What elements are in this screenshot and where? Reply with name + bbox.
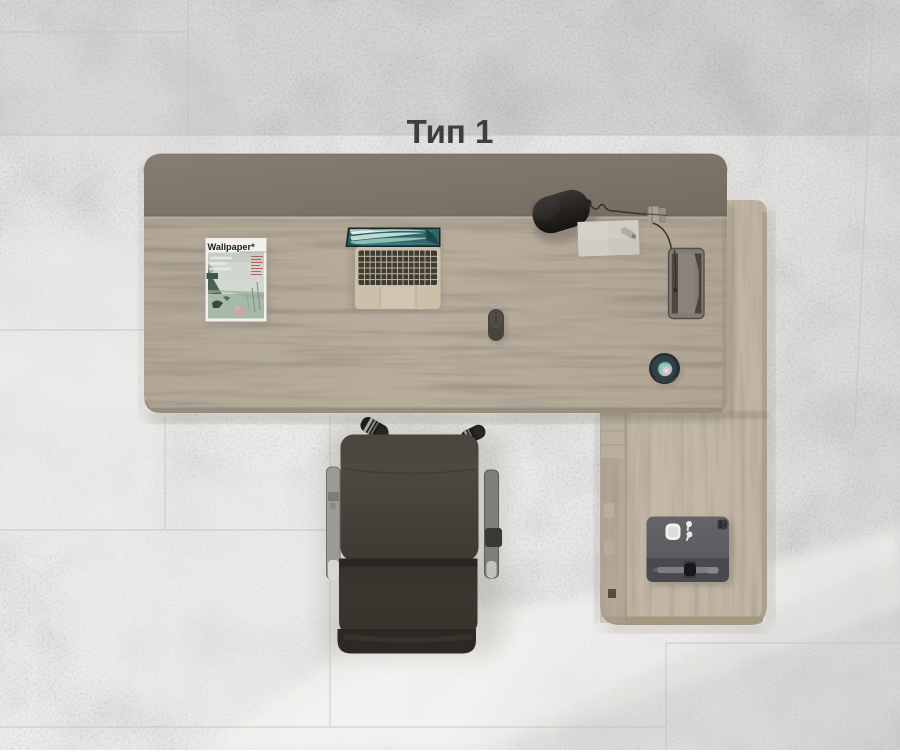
svg-text:Wallpaper*: Wallpaper*	[208, 242, 256, 252]
svg-text:Тип 1: Тип 1	[407, 113, 494, 150]
